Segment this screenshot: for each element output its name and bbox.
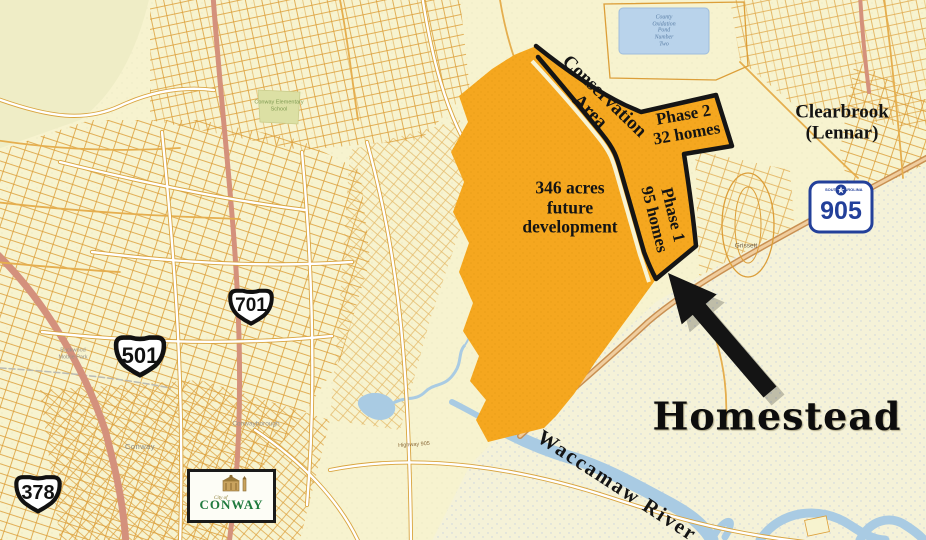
map-canvas: Conservation Area Phase 2 32 homes Phase… bbox=[0, 0, 926, 540]
us-701-shield: 701 bbox=[227, 286, 275, 326]
mobile-park-label: Buckwood Mobile Park bbox=[58, 347, 87, 360]
conwayborough-label: Conwayborough bbox=[232, 420, 279, 427]
pond-label: County Oxidation Pond Number Two bbox=[652, 14, 675, 47]
school-label: Conway Elementary School bbox=[254, 99, 303, 112]
homestead-title: Homestead bbox=[653, 396, 902, 439]
conway-place-label: Conway bbox=[125, 443, 155, 451]
wave-icon bbox=[195, 520, 217, 523]
sc-905-shield: SOUTH CAROLINA 905 bbox=[808, 180, 874, 234]
city-hall-icon bbox=[215, 474, 249, 492]
clearbrook-label: Clearbrook (Lennar) bbox=[795, 102, 889, 145]
future-development-label: 346 acres future development bbox=[522, 179, 617, 238]
basemap-svg bbox=[0, 0, 926, 540]
us-378-shield: 378 bbox=[13, 472, 63, 514]
grissett-label: Grissett bbox=[735, 242, 757, 249]
logo-city-name: CONWAY bbox=[190, 498, 273, 511]
us-501-shield: 501 bbox=[112, 332, 168, 378]
conway-city-logo: City of CONWAY SOUTH CAROLINA bbox=[187, 469, 276, 523]
logo-city-of: City of bbox=[214, 496, 227, 501]
